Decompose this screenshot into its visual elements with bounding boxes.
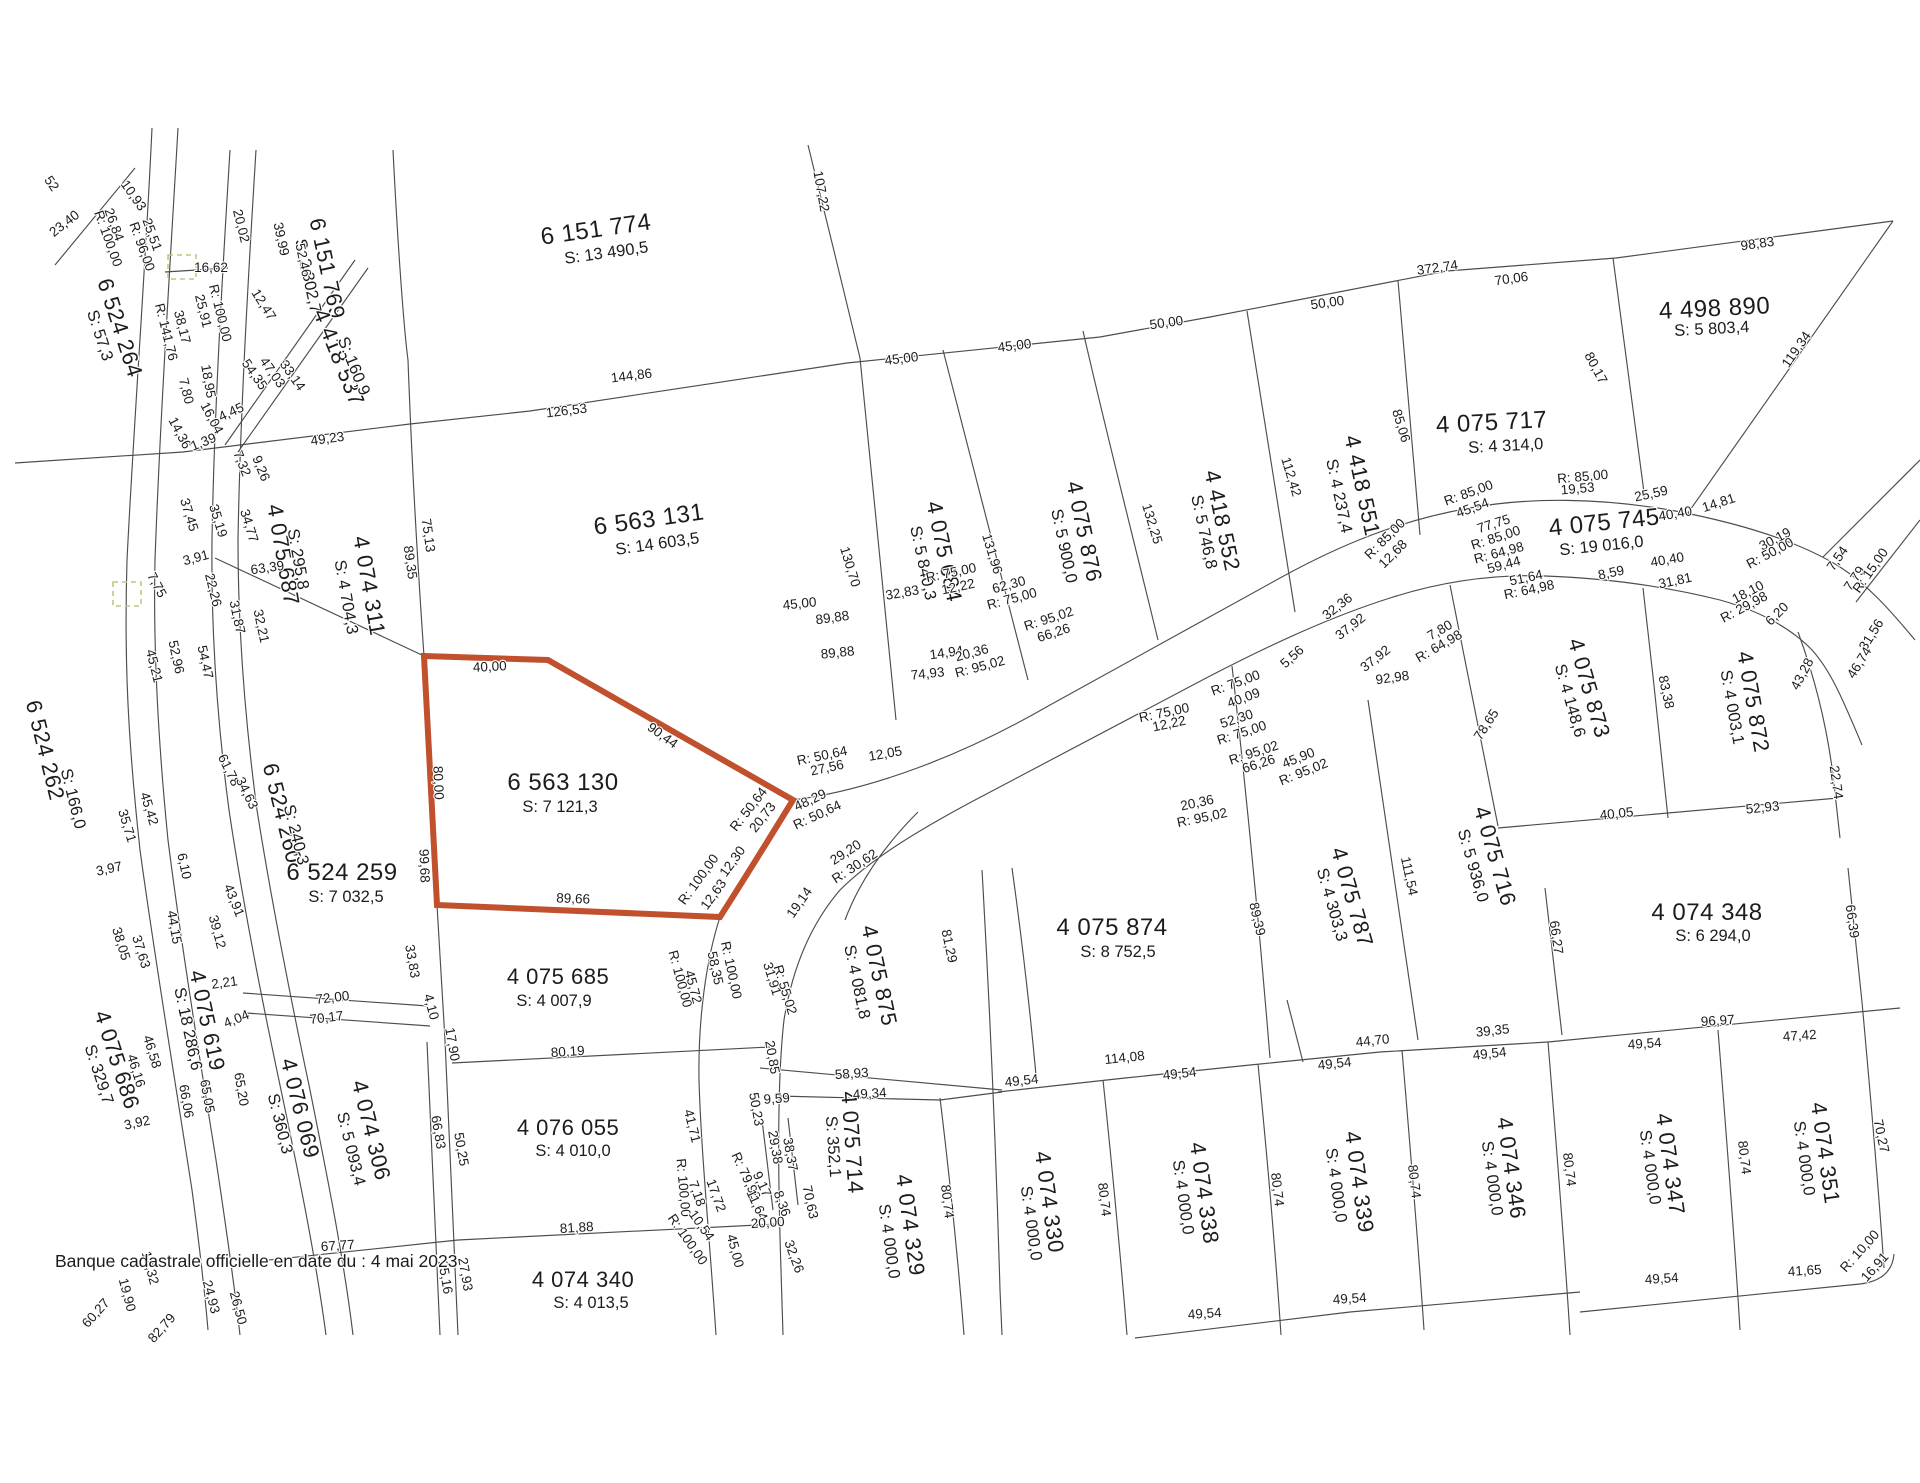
dimension-label: 47,42 [1782,1027,1817,1044]
cadastral-map-page: 6 151 774S: 13 490,56 563 131S: 14 603,5… [0,0,1920,1483]
dimension-label: 16,62 [194,260,228,275]
lot-number-label: 4 076 055 [517,1115,619,1140]
lot-area-label: S: 4 007,9 [516,992,591,1010]
dimension-label: 58,93 [834,1065,869,1082]
cadastre-date-note: Banque cadastrale officielle en date du … [55,1251,457,1271]
lot-number-label: 4 075 685 [507,964,609,989]
lot-area-label: S: 8 752,5 [1080,943,1155,961]
dimension-label: 89,66 [556,890,590,906]
lot-area-label: S: 6 294,0 [1675,927,1750,945]
dimension-label: 40,00 [472,658,507,675]
lot-area-label: S: 7 032,5 [308,888,383,906]
dimension-label: 19,53 [1560,480,1595,498]
dimension-label: 81,88 [559,1219,594,1236]
dimension-label: 96,97 [1700,1012,1735,1029]
dimension-label: 49,54 [1332,1290,1367,1307]
lot-number-label: 6 524 259 [286,859,397,886]
dimension-label: 80,19 [550,1043,585,1060]
dimension-label: 99,68 [416,849,432,883]
dimension-label: 49,34 [852,1085,887,1102]
dimension-label: 49,54 [1187,1305,1222,1322]
lot-number-label: 6 563 130 [507,769,618,796]
dimension-label: 80,00 [430,766,446,800]
lot-area-label: S: 7 121,3 [522,798,597,816]
lot-number-label: 4 074 340 [532,1267,634,1292]
dimension-label: 49,54 [1627,1035,1662,1052]
lot-number-label: 4 074 348 [1651,899,1762,926]
dimension-label: 20,00 [750,1214,785,1231]
dimension-label: 41,65 [1787,1262,1822,1279]
dimension-label: 9,59 [763,1090,790,1107]
lot-number-label: 4 075 874 [1056,914,1167,941]
lot-area-label: S: 4 013,5 [553,1294,628,1312]
lot-area-label: S: 4 010,0 [535,1142,610,1160]
cadastral-map-canvas: 6 151 774S: 13 490,56 563 131S: 14 603,5… [0,0,1920,1483]
dimension-label: 49,54 [1644,1270,1679,1287]
